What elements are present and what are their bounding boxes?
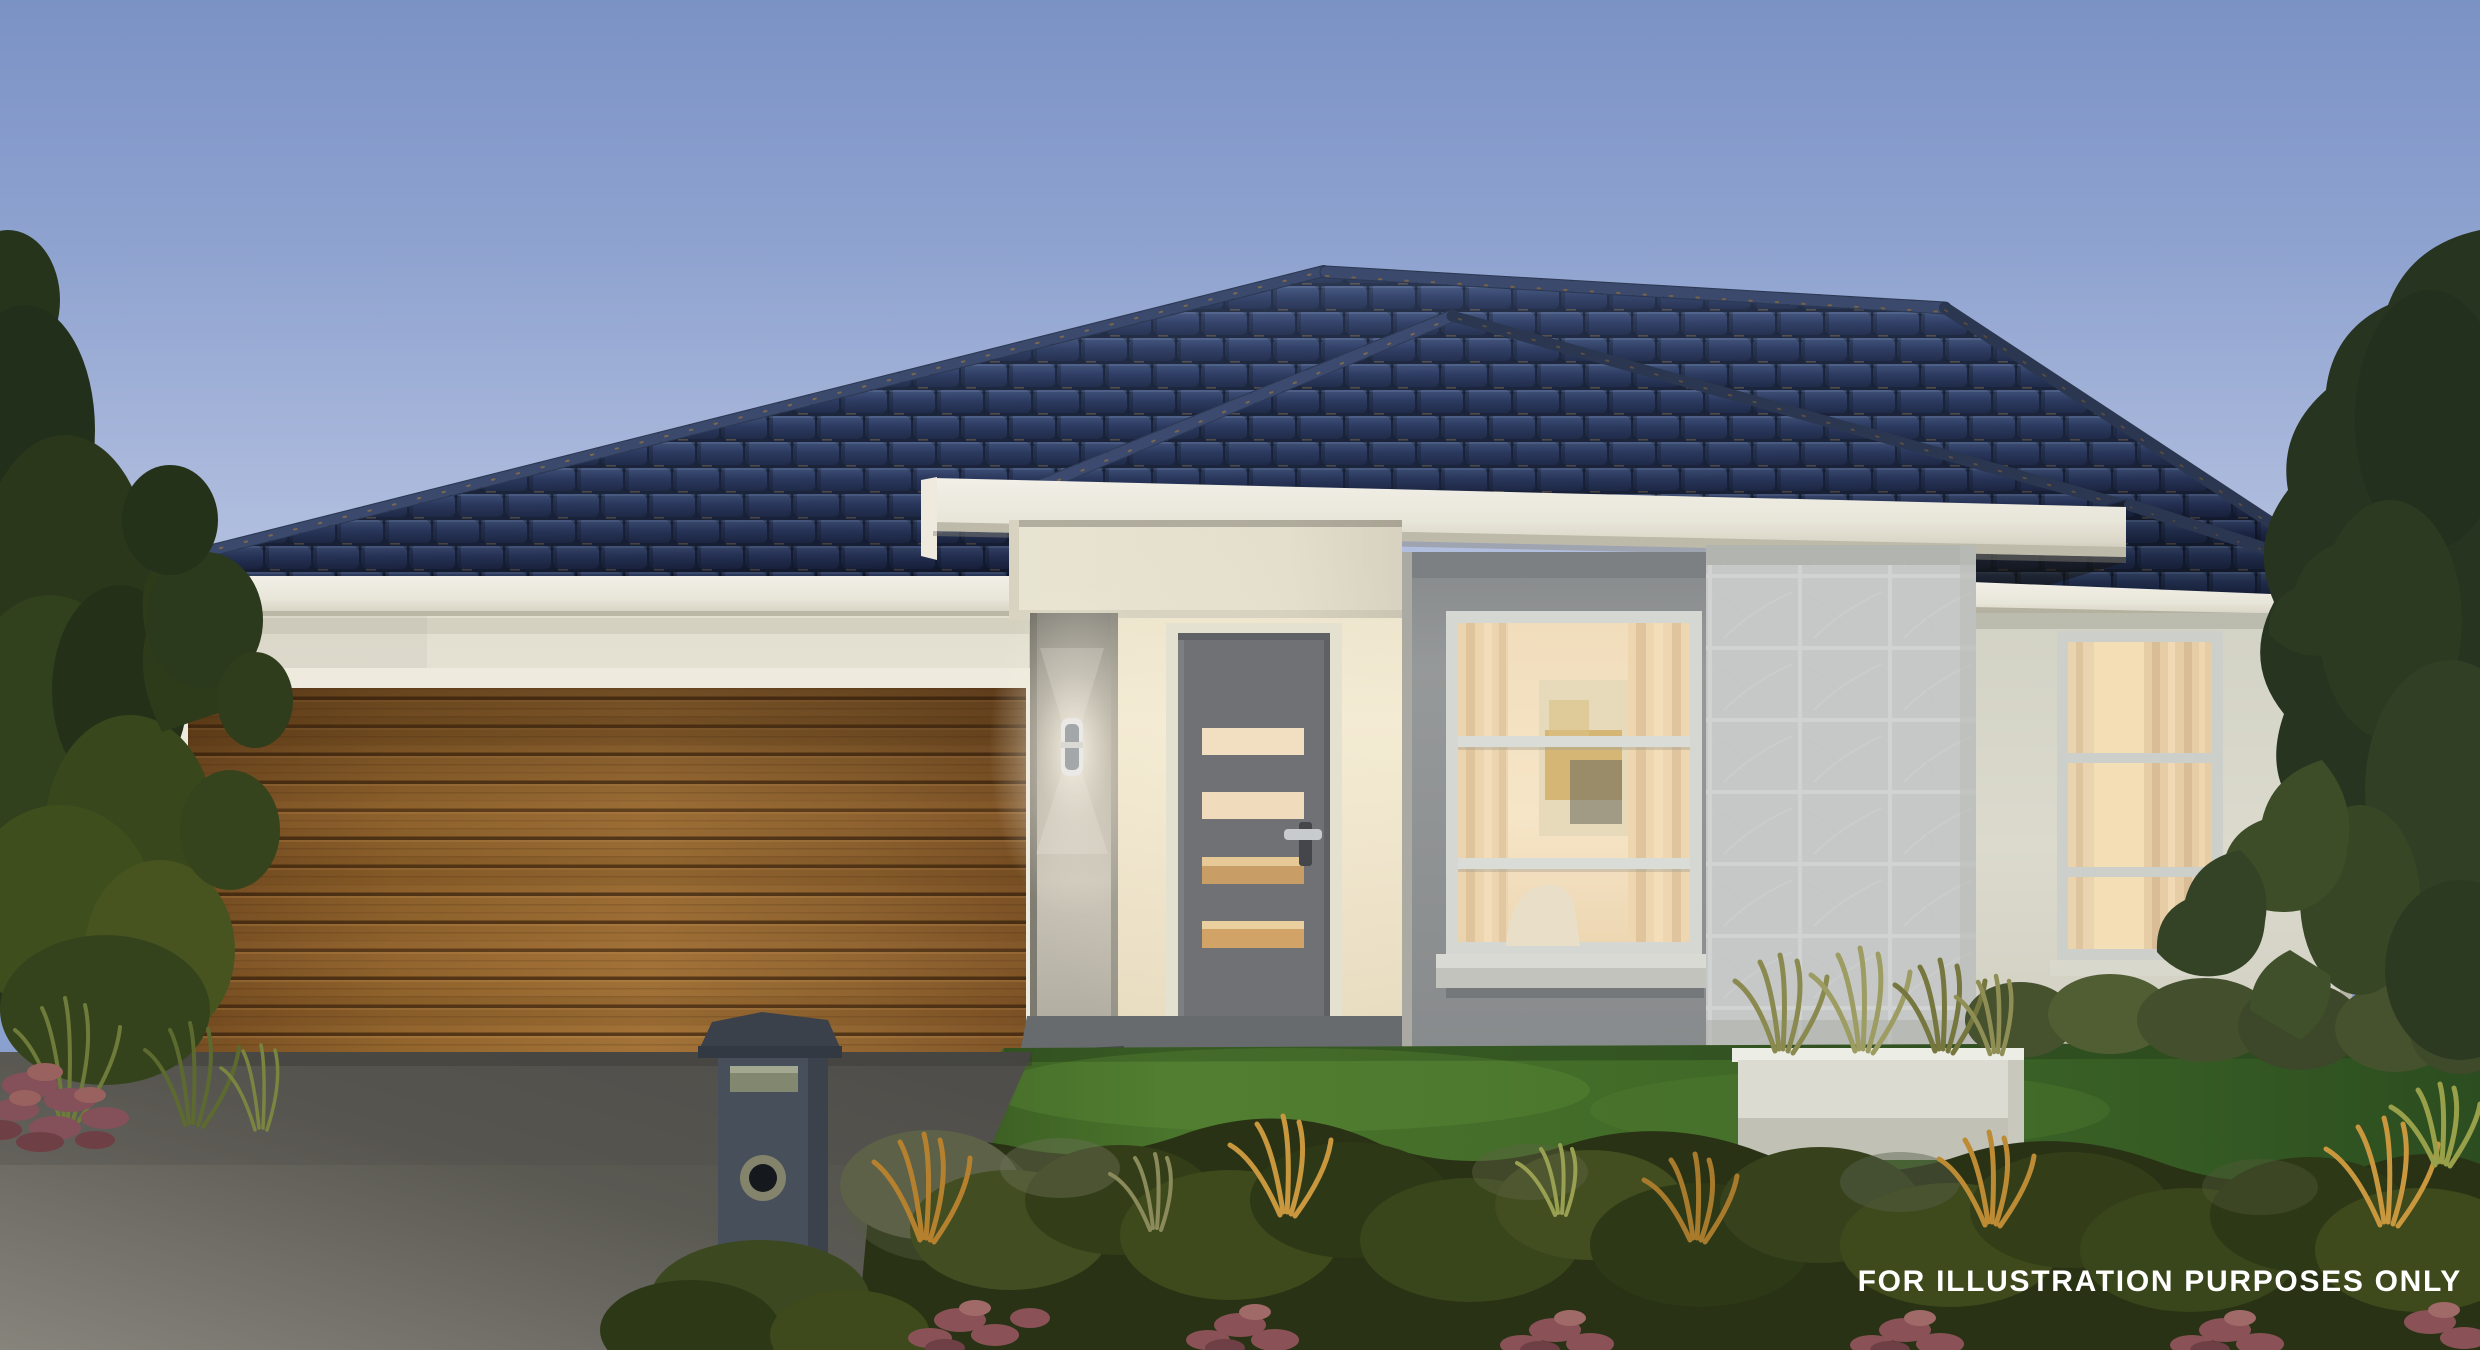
svg-text:FOR ILLUSTRATION PURPOSES ONLY: FOR ILLUSTRATION PURPOSES ONLY (1858, 1265, 2462, 1298)
